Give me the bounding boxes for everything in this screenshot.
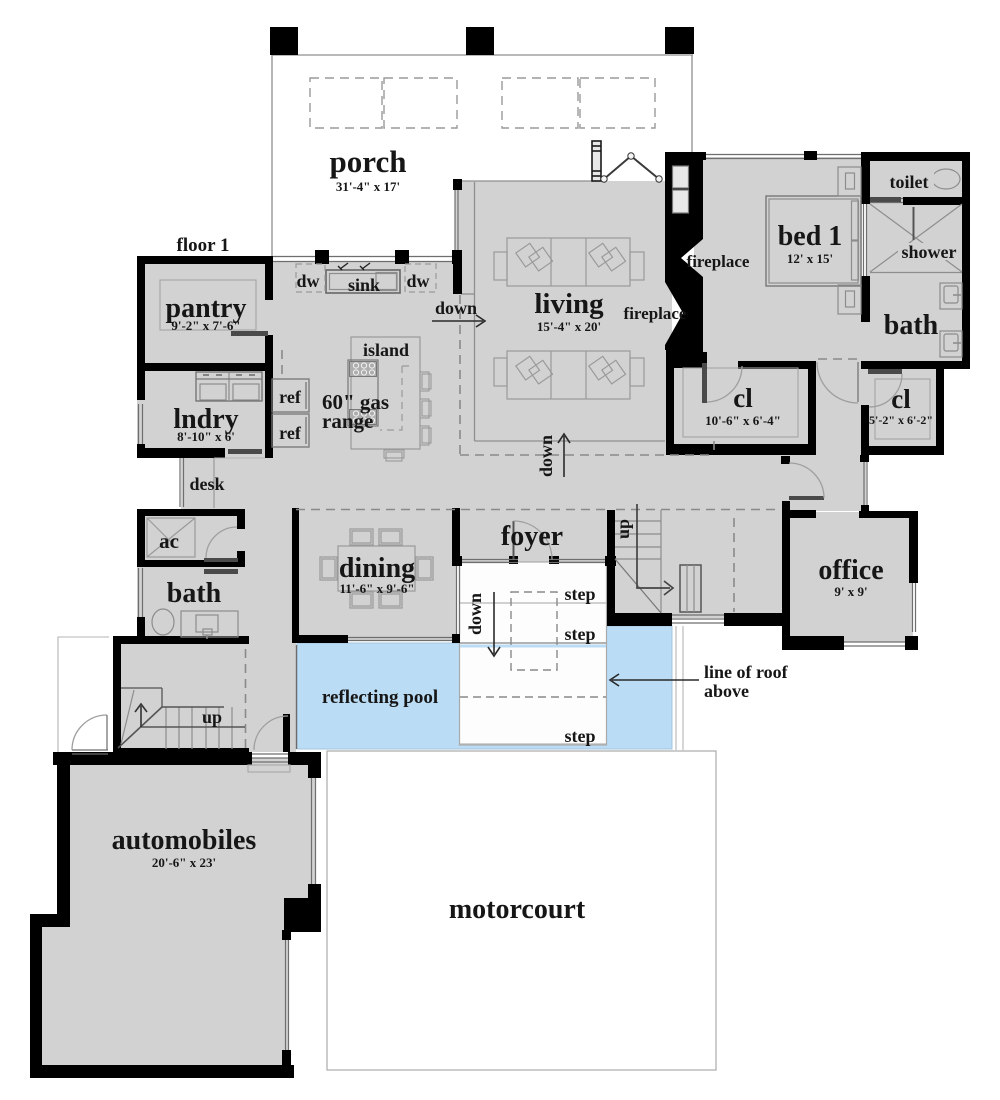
svg-text:down: down [465,593,485,635]
svg-text:sink: sink [348,275,380,295]
svg-text:step: step [565,584,596,604]
svg-text:ref: ref [279,387,302,407]
svg-text:31'-4" x 17': 31'-4" x 17' [336,179,400,194]
svg-text:down: down [435,298,477,318]
svg-text:office: office [818,555,883,586]
svg-text:up: up [613,519,633,539]
svg-text:foyer: foyer [501,521,563,552]
svg-text:down: down [536,435,556,477]
svg-text:5'-2" x 6'-2": 5'-2" x 6'-2" [869,413,933,427]
svg-text:above: above [704,681,749,701]
svg-text:automobiles: automobiles [112,825,257,856]
svg-text:motorcourt: motorcourt [449,894,586,925]
svg-text:15'-4" x 20': 15'-4" x 20' [537,319,601,334]
svg-text:bath: bath [884,310,939,341]
svg-text:up: up [202,707,222,727]
svg-text:step: step [565,726,596,746]
svg-text:toilet: toilet [890,172,929,192]
svg-text:desk: desk [189,474,224,494]
svg-text:island: island [363,340,409,360]
svg-text:ac: ac [159,529,179,553]
svg-text:dining: dining [339,553,415,584]
svg-text:dw: dw [406,271,429,291]
svg-text:living: living [534,288,604,320]
svg-text:20'-6" x 23': 20'-6" x 23' [152,855,216,870]
svg-text:12' x 15': 12' x 15' [787,251,833,266]
svg-text:cl: cl [891,384,911,414]
svg-text:porch: porch [330,144,407,179]
svg-text:11'-6" x 9'-6": 11'-6" x 9'-6" [339,581,414,596]
svg-text:9'-2" x 7'-6": 9'-2" x 7'-6" [171,318,240,333]
svg-text:reflecting pool: reflecting pool [322,687,438,708]
svg-text:shower: shower [902,242,957,262]
svg-text:step: step [565,624,596,644]
svg-text:bed 1: bed 1 [778,221,843,252]
svg-text:fireplace: fireplace [687,252,750,271]
svg-text:fireplace: fireplace [624,304,687,323]
svg-text:floor 1: floor 1 [177,235,230,256]
svg-text:range: range [322,409,373,433]
svg-text:ref: ref [279,423,302,443]
svg-text:8'-10" x 6': 8'-10" x 6' [177,429,235,444]
svg-text:10'-6" x 6'-4": 10'-6" x 6'-4" [705,413,781,428]
svg-text:bath: bath [167,578,222,609]
svg-text:line of roof: line of roof [704,662,789,682]
svg-text:dw: dw [296,271,319,291]
svg-text:cl: cl [733,383,753,413]
svg-text:9' x 9': 9' x 9' [834,584,867,599]
